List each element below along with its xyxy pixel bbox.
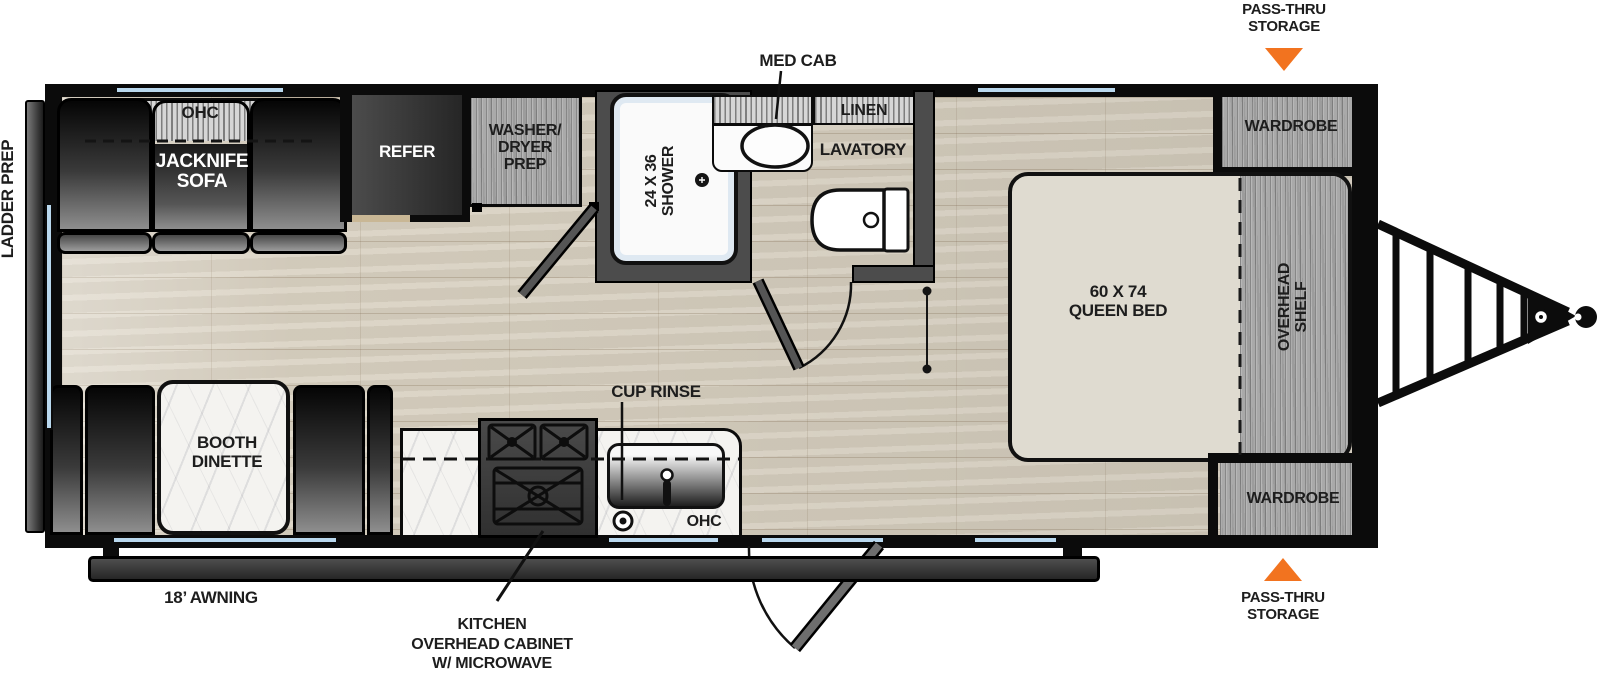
overhead-shelf-label: OVERHEAD SHELF (1276, 247, 1312, 367)
hitch-a-frame (1378, 224, 1597, 403)
ladder-prep-label: LADDER PREP (0, 124, 19, 274)
cup-rinse-label: CUP RINSE (596, 383, 716, 402)
awning-label: 18’ AWNING (141, 589, 281, 608)
shower-label: 24 X 36 SHOWER (643, 121, 679, 241)
pass-thru-top-arrow-icon (1265, 48, 1303, 71)
wardrobe-bottom-label: WARDROBE (1233, 490, 1353, 507)
lavatory-sink (742, 125, 808, 167)
jacknife-sofa-label: JACKNIFE SOFA (142, 152, 262, 192)
wd-door-stop-left (472, 203, 482, 212)
wardrobe-top-label: WARDROBE (1231, 118, 1351, 135)
pass-thru-bottom-arrow-icon (1264, 558, 1302, 581)
kitchen-cabinet-leader-line (497, 531, 543, 601)
med-cab-leader-line (776, 71, 781, 119)
floorplan-stage: PASS-THRU STORAGE PASS-THRU STORAGE LADD… (0, 0, 1600, 675)
stove-burner-left (507, 437, 517, 447)
kitchen-faucet-spout (663, 480, 671, 506)
kitchen-ohc-label: OHC (674, 513, 734, 530)
bath-door-swing-arc (799, 282, 851, 368)
pass-thru-storage-bottom-label: PASS-THRU STORAGE (1213, 590, 1353, 623)
bath-door-panel (758, 281, 799, 368)
kitchen-faucet-base (662, 470, 673, 481)
stove-burner-right (559, 437, 569, 447)
lineart-layer (0, 0, 1600, 675)
privacy-divider-dot-top (923, 287, 932, 296)
cup-rinse-fixture-center (620, 518, 627, 525)
booth-dinette-label: BOOTH DINETTE (167, 434, 287, 471)
med-cab-label: MED CAB (738, 52, 858, 71)
toilet-flush-button (864, 213, 878, 227)
washer-dryer-label: WASHER/ DRYER PREP (470, 122, 580, 173)
pass-thru-storage-top-label: PASS-THRU STORAGE (1214, 2, 1354, 35)
linen-label: LINEN (819, 102, 909, 119)
toilet-tank (884, 189, 908, 251)
stove-grates (489, 425, 587, 524)
kitchen-cabinet-note-label: KITCHEN OVERHEAD CABINET W/ MICROWAVE (392, 615, 592, 674)
privacy-divider-dot-bottom (923, 365, 932, 374)
lavatory-label: LAVATORY (813, 141, 913, 160)
refer-label: REFER (352, 143, 462, 162)
sofa-ohc-label: OHC (170, 104, 230, 123)
wd-door-panel (522, 208, 594, 295)
queen-bed-label: 60 X 74 QUEEN BED (1043, 283, 1193, 320)
